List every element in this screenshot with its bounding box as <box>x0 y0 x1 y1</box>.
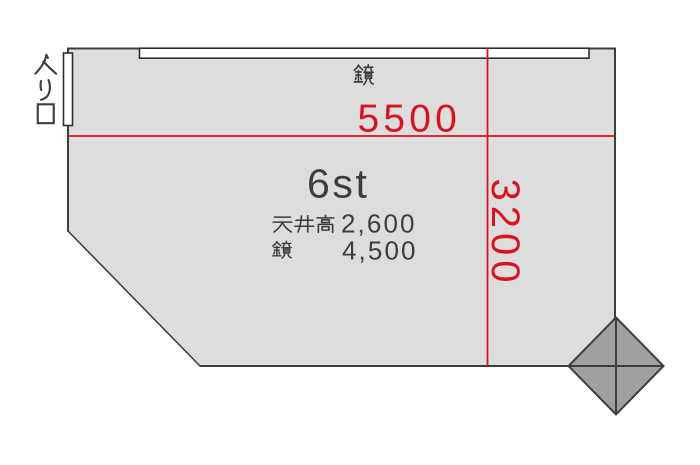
svg-text:2,600: 2,600 <box>341 209 417 239</box>
svg-text:6st: 6st <box>307 161 370 207</box>
svg-text:4,500: 4,500 <box>342 236 418 266</box>
svg-text:5500: 5500 <box>358 98 462 141</box>
svg-text:3200: 3200 <box>483 179 527 288</box>
